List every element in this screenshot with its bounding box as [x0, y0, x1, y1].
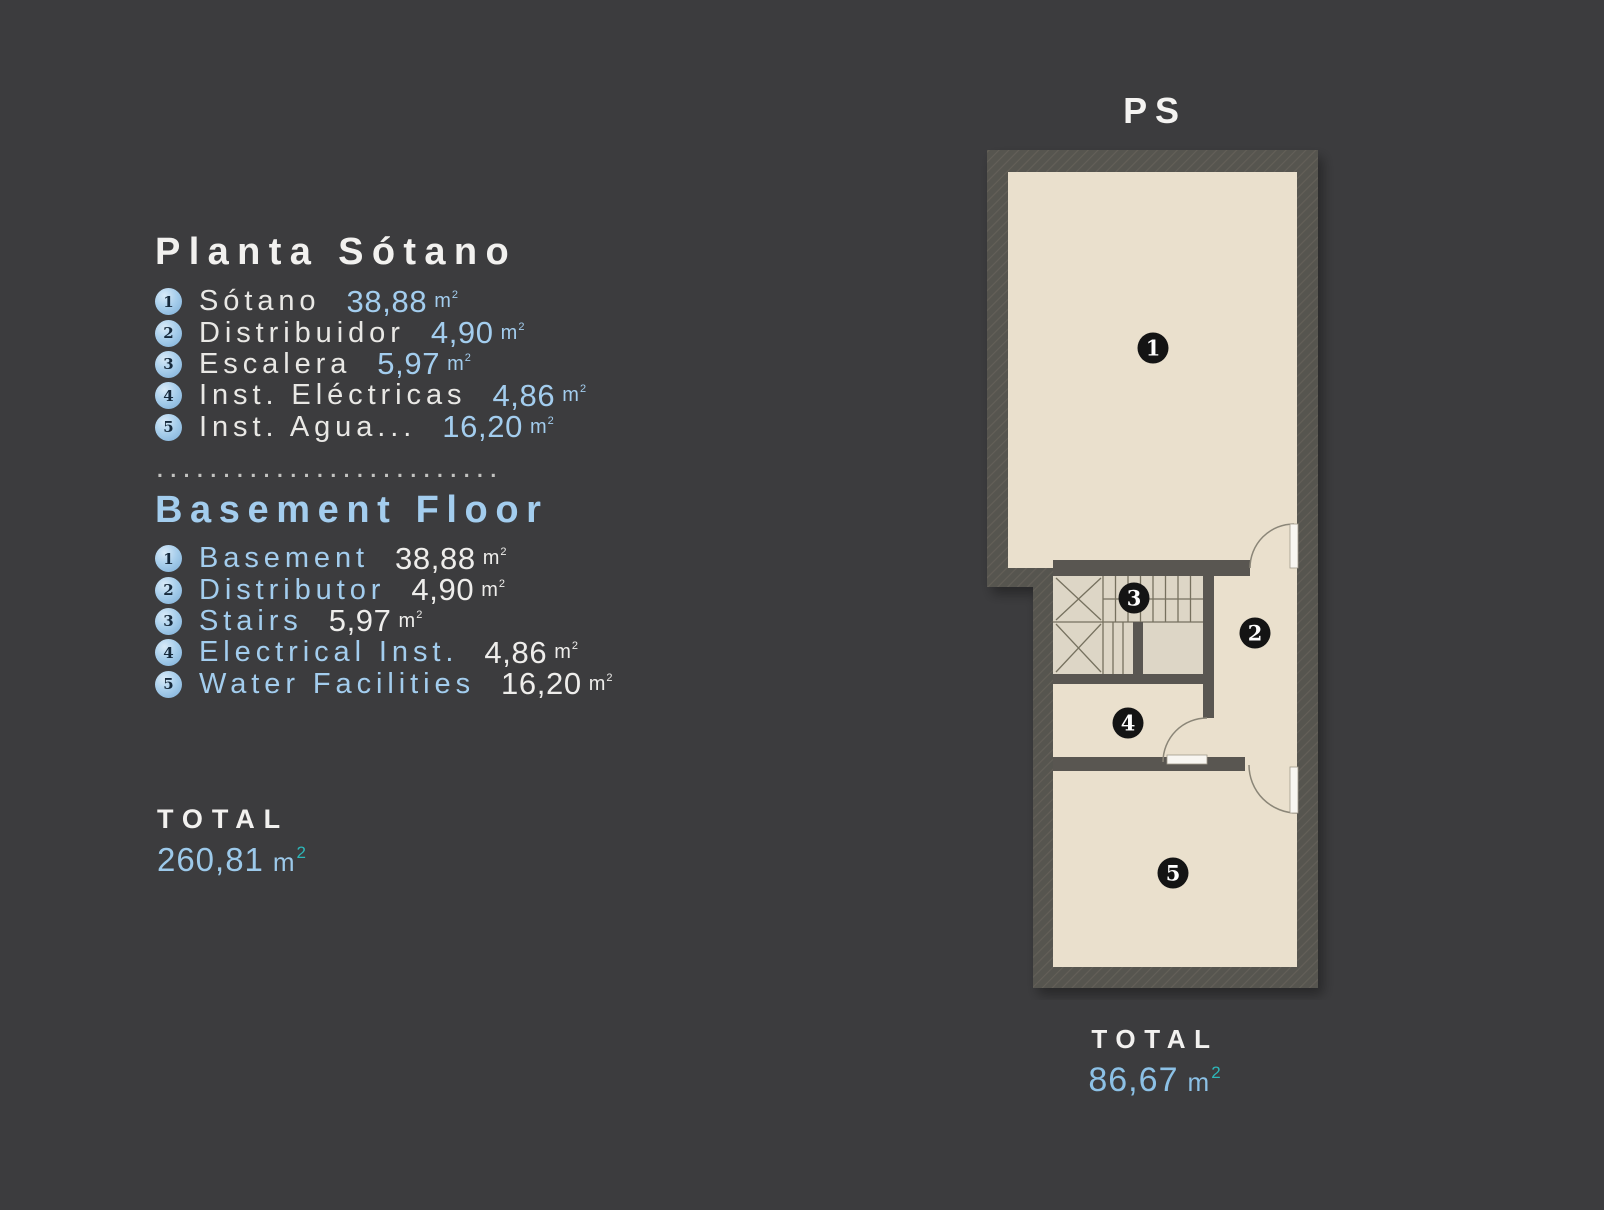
list-item: 4 Inst. Eléctricas 4,86 m2 [155, 380, 775, 411]
area-unit: m2 [399, 610, 423, 633]
list-item: 4 Electrical Inst. 4,86 m2 [155, 637, 775, 668]
room-area-value: 5,97 [329, 603, 392, 639]
area-unit: m2 [481, 579, 505, 602]
room-area-value: 5,97 [377, 346, 440, 382]
list-item: 3 Stairs 5,97 m2 [155, 606, 775, 637]
title-english: Basement Floor [155, 489, 775, 531]
unit-superscript: 2 [465, 352, 471, 364]
area-unit: m2 [554, 641, 578, 664]
door-threshold [1167, 755, 1207, 764]
plan-title: PS [940, 90, 1370, 132]
total-label: TOTAL [157, 804, 307, 834]
number-badge: 5 [155, 671, 182, 698]
area-unit: m [273, 847, 296, 877]
title-spanish: Planta Sótano [155, 231, 775, 273]
room-area-value: 38,88 [347, 284, 428, 320]
unit-superscript: 2 [572, 640, 578, 652]
dotted-separator: .......................... [157, 459, 775, 483]
room-label: Stairs [199, 605, 303, 638]
number-badge: 1 [155, 545, 182, 572]
area-unit: m2 [434, 290, 458, 313]
unit-superscript: 2 [1211, 1063, 1221, 1082]
room-label: Water Facilities [199, 668, 475, 701]
list-item: 5 Water Facilities 16,20 m2 [155, 669, 775, 700]
unit-superscript: 2 [297, 843, 307, 862]
number-badge: 4 [155, 382, 182, 409]
room-area-value: 16,20 [442, 409, 523, 445]
room-label: Distributor [199, 574, 385, 607]
unit-superscript: 2 [580, 383, 586, 395]
room-area-value: 4,90 [411, 572, 474, 608]
plan-total-block: TOTAL 86,67m2 [940, 1024, 1370, 1104]
door-leaf [1290, 524, 1298, 568]
room-number: 2 [1248, 621, 1263, 646]
list-item: 1 Sótano 38,88 m2 [155, 286, 775, 317]
area-unit: m2 [483, 547, 507, 570]
total-value: 260,81m2 [157, 842, 307, 884]
list-item: 5 Inst. Agua... 16,20 m2 [155, 412, 775, 443]
number-badge: 2 [155, 577, 182, 604]
number-badge: 1 [155, 288, 182, 315]
total-value: 86,67m2 [940, 1062, 1370, 1104]
legend-panel: Planta Sótano 1 Sótano 38,88 m2 2 Distri… [155, 231, 775, 700]
room-area-value: 16,20 [501, 666, 582, 702]
area-unit: m2 [530, 416, 554, 439]
unit-superscript: 2 [452, 289, 458, 301]
door-leaf [1290, 767, 1298, 813]
unit-superscript: 2 [518, 321, 524, 333]
unit-superscript: 2 [500, 546, 506, 558]
room-label: Inst. Eléctricas [199, 379, 466, 412]
room-number: 5 [1166, 861, 1181, 886]
number-badge: 3 [155, 351, 182, 378]
total-left-block: TOTAL 260,81m2 [157, 804, 307, 884]
area-unit: m2 [562, 384, 586, 407]
room-label: Basement [199, 542, 369, 575]
room-area-value: 4,90 [431, 315, 494, 351]
area-unit: m2 [447, 353, 471, 376]
area-unit: m2 [501, 322, 525, 345]
room-number: 3 [1127, 586, 1142, 611]
total-label: TOTAL [940, 1024, 1370, 1054]
room-label: Sótano [199, 285, 321, 318]
list-item: 3 Escalera 5,97 m2 [155, 349, 775, 380]
room-label: Distribuidor [199, 317, 405, 350]
list-item: 1 Basement 38,88 m2 [155, 543, 775, 574]
unit-superscript: 2 [499, 578, 505, 590]
number-badge: 5 [155, 414, 182, 441]
room-label: Escalera [199, 348, 351, 381]
list-item: 2 Distributor 4,90 m2 [155, 574, 775, 605]
unit-superscript: 2 [606, 672, 612, 684]
unit-superscript: 2 [548, 415, 554, 427]
floor-plan-svg: 1 2 3 4 5 [940, 140, 1370, 1000]
number-badge: 4 [155, 639, 182, 666]
room-label: Electrical Inst. [199, 636, 458, 669]
number-badge: 2 [155, 320, 182, 347]
list-item: 2 Distribuidor 4,90 m2 [155, 317, 775, 348]
area-unit: m [1188, 1067, 1211, 1097]
room-label: Inst. Agua... [199, 411, 416, 444]
area-unit: m2 [589, 673, 613, 696]
unit-superscript: 2 [416, 609, 422, 621]
room-number: 4 [1121, 711, 1136, 736]
number-badge: 3 [155, 608, 182, 635]
room-number: 1 [1146, 336, 1161, 361]
